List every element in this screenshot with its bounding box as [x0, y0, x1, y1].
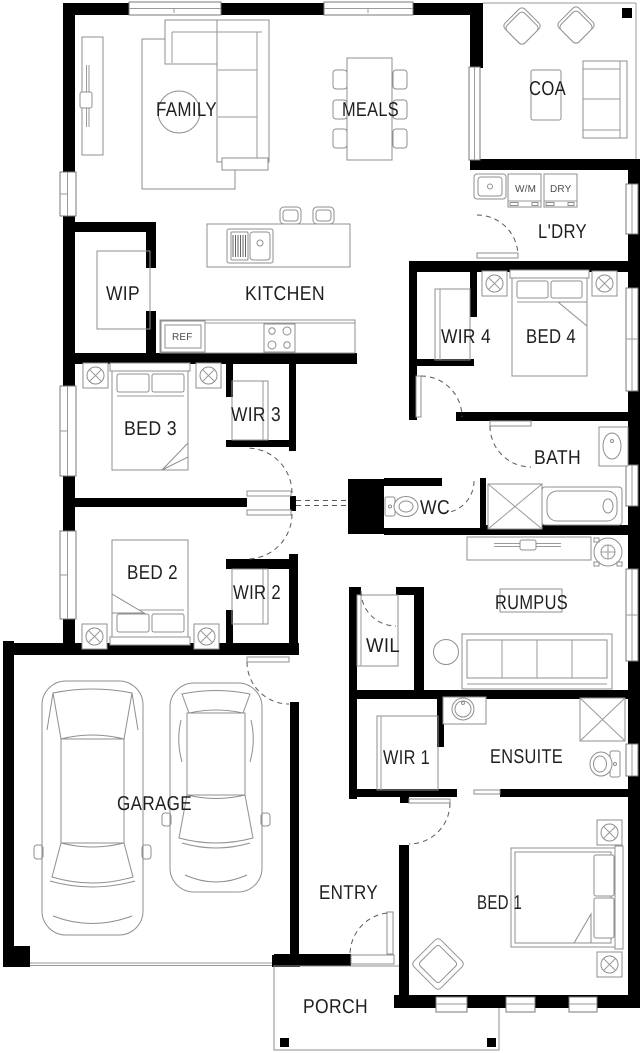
svg-text:WIP: WIP [106, 283, 140, 305]
svg-text:BED 1: BED 1 [477, 892, 522, 914]
svg-text:W/M: W/M [515, 184, 536, 195]
svg-text:ENSUITE: ENSUITE [490, 746, 563, 768]
svg-text:COA: COA [529, 78, 566, 100]
svg-text:MEALS: MEALS [342, 99, 399, 121]
svg-text:WIL: WIL [366, 635, 400, 657]
svg-text:GARAGE: GARAGE [117, 793, 192, 815]
svg-text:BED 3: BED 3 [124, 418, 177, 440]
svg-text:DRY: DRY [550, 184, 572, 195]
svg-text:RUMPUS: RUMPUS [495, 592, 568, 614]
svg-text:WIR 3: WIR 3 [231, 404, 281, 426]
svg-text:WIR 1: WIR 1 [383, 747, 430, 769]
svg-text:L'DRY: L'DRY [538, 221, 587, 243]
svg-text:PORCH: PORCH [303, 996, 368, 1018]
svg-text:BED 4: BED 4 [526, 326, 576, 348]
svg-text:FAMILY: FAMILY [156, 99, 217, 121]
svg-text:KITCHEN: KITCHEN [245, 283, 325, 305]
svg-text:WIR 4: WIR 4 [441, 326, 491, 348]
svg-text:WC: WC [420, 497, 450, 519]
svg-text:BATH: BATH [534, 447, 581, 469]
svg-text:REF: REF [172, 332, 193, 343]
svg-text:WIR 2: WIR 2 [233, 582, 281, 604]
svg-text:BED 2: BED 2 [127, 562, 178, 584]
svg-text:ENTRY: ENTRY [319, 882, 378, 904]
